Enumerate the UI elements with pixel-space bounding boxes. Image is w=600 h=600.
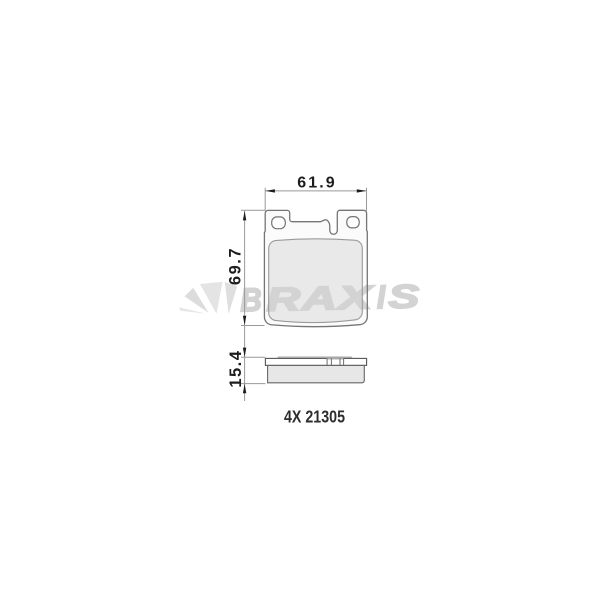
svg-text:61.9: 61.9 xyxy=(297,174,337,191)
svg-text:I: I xyxy=(376,278,386,315)
svg-text:R: R xyxy=(266,280,301,318)
svg-text:4X 21305: 4X 21305 xyxy=(284,407,345,427)
svg-text:A: A xyxy=(300,279,337,317)
svg-text:S: S xyxy=(388,277,420,315)
svg-text:X: X xyxy=(335,278,375,316)
svg-text:B: B xyxy=(240,281,262,318)
svg-text:69.7: 69.7 xyxy=(226,247,244,285)
svg-text:15.4: 15.4 xyxy=(227,350,245,388)
